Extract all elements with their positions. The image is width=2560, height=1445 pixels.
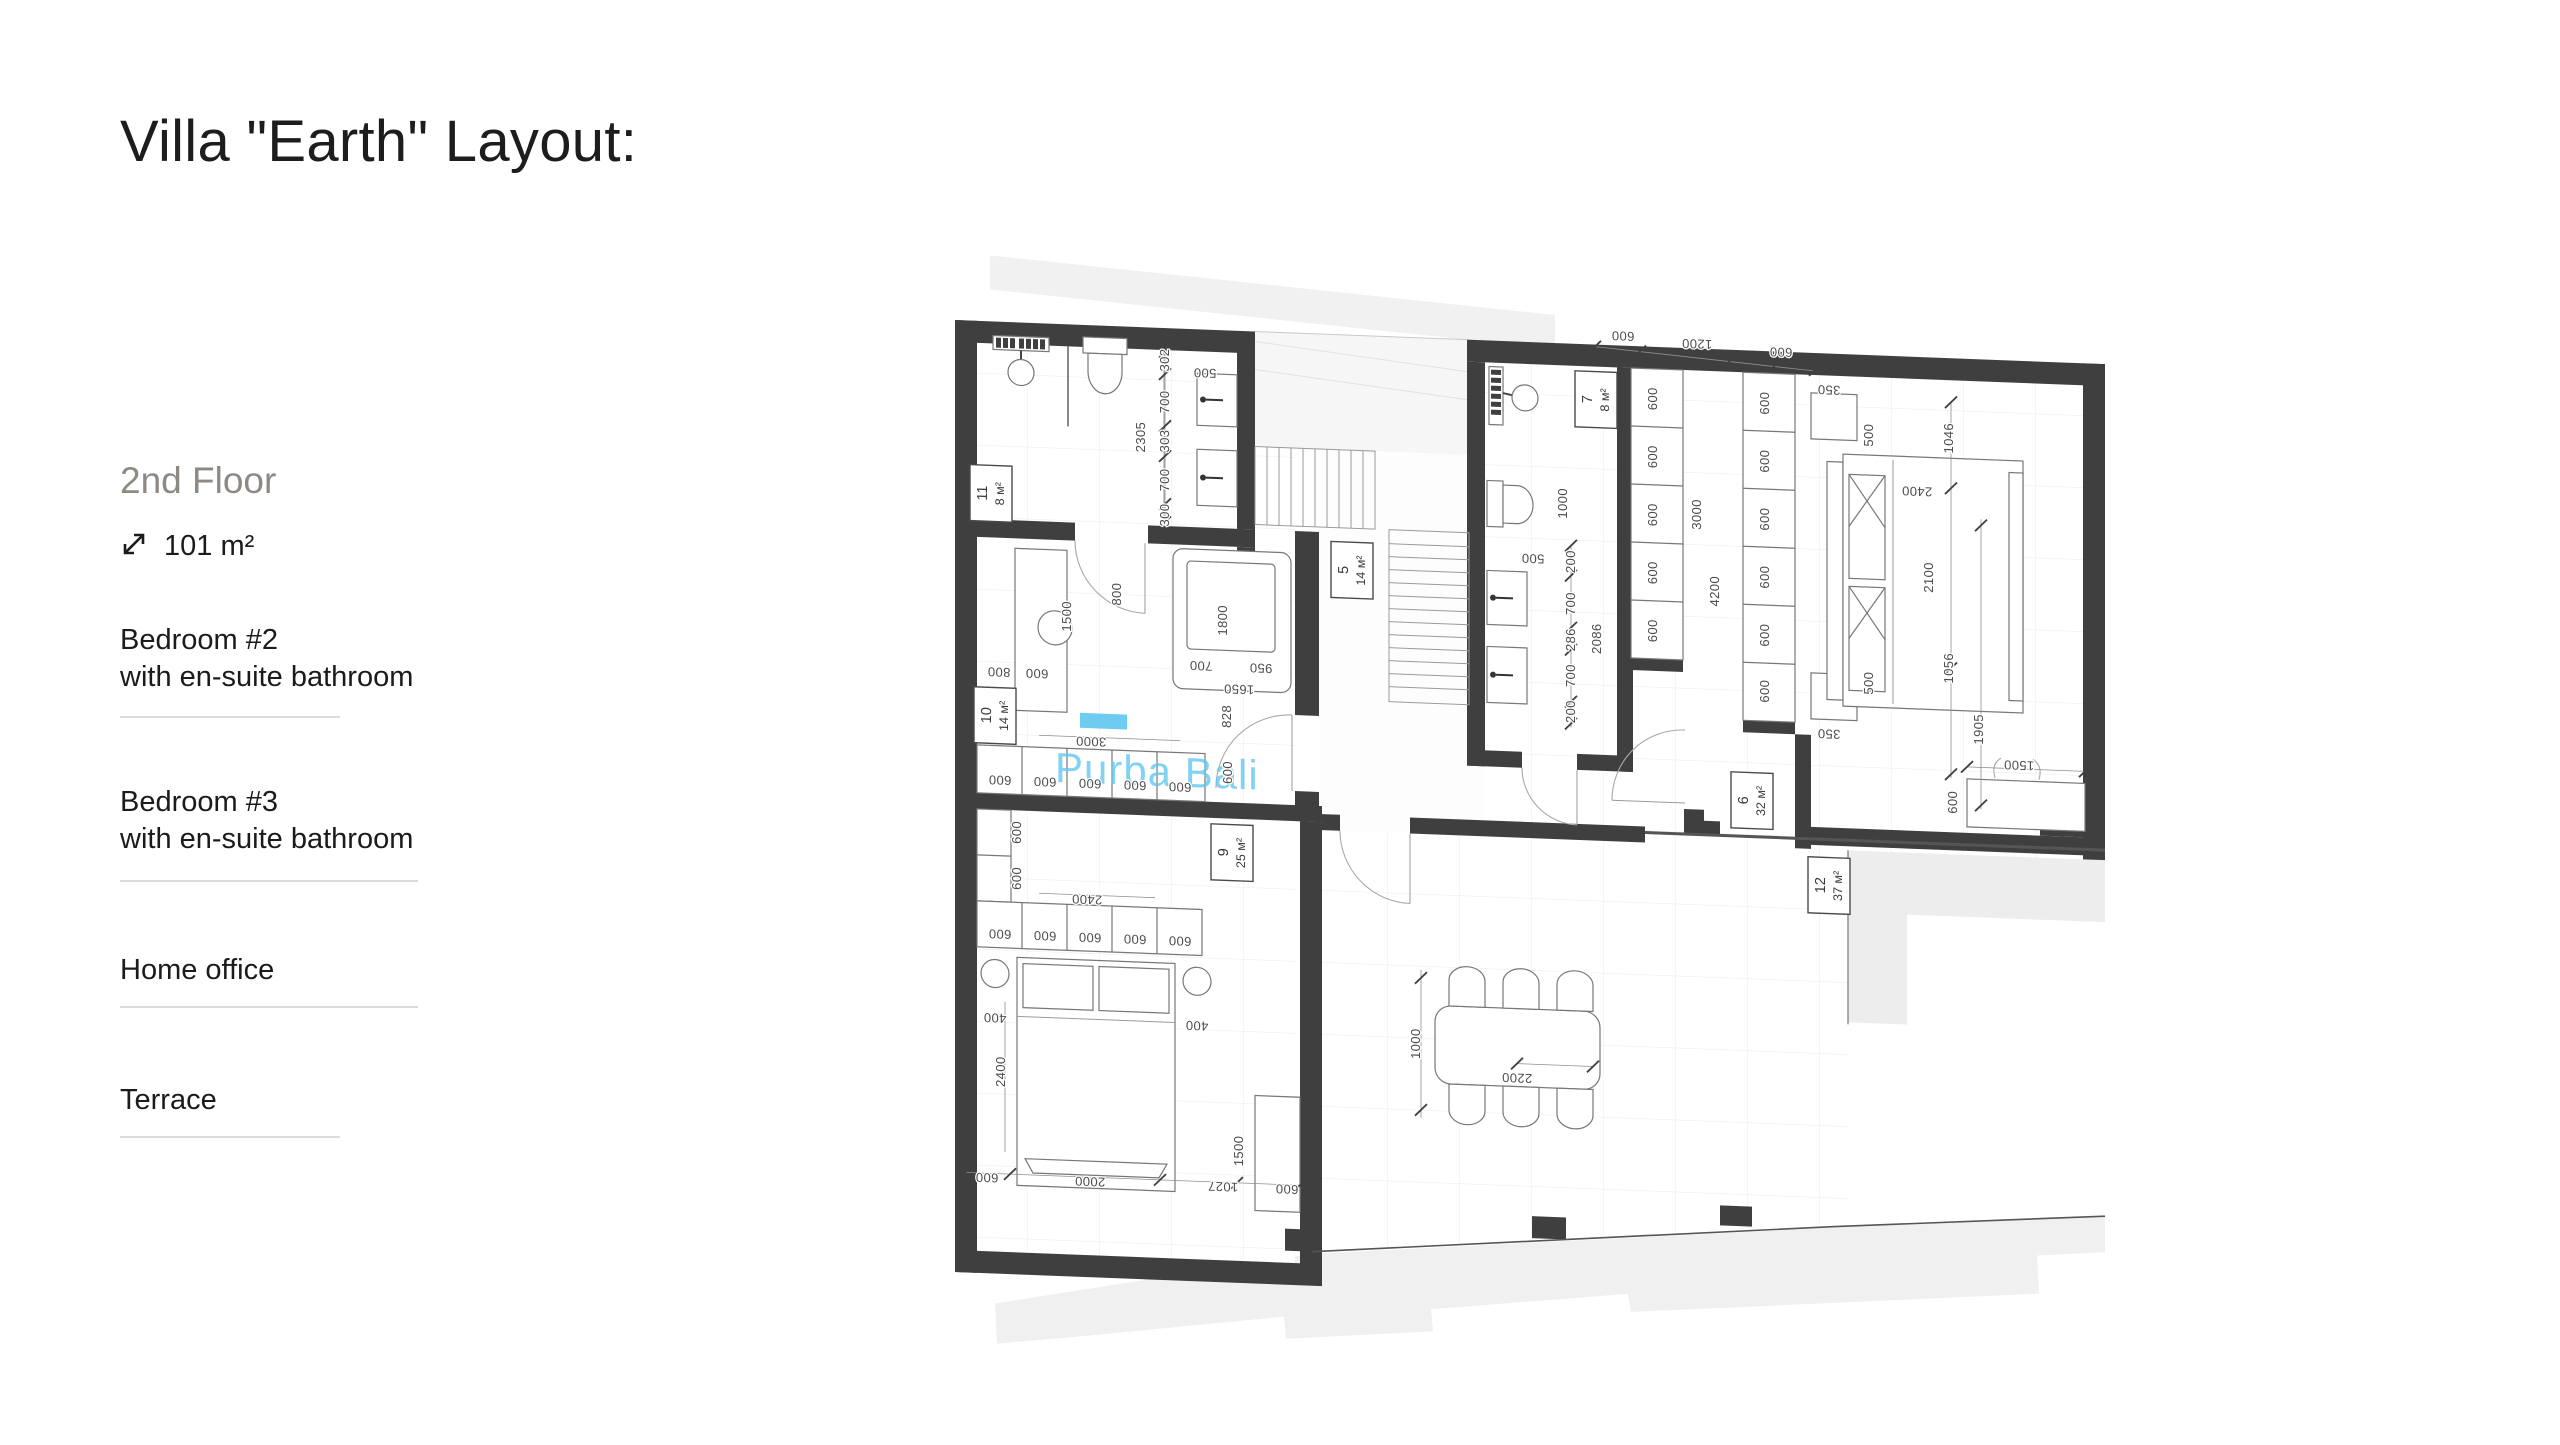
svg-text:12: 12 — [1813, 877, 1829, 894]
page-title: Villa "Earth" Layout: — [120, 108, 637, 175]
plan-root: Purba Bali 60012006005003027003037003002… — [955, 254, 2105, 1386]
dim-label: 700 — [1157, 468, 1172, 491]
room-label: 632 м² — [1731, 772, 1773, 830]
dim-label: 600 — [1645, 561, 1660, 584]
dim-label: 2400 — [1072, 891, 1103, 907]
dim-label: 600 — [989, 926, 1012, 942]
dim-label: 800 — [1109, 582, 1124, 605]
room-list-item-bedroom3: Bedroom #3 with en-suite bathroom — [120, 784, 413, 857]
dim-label: 600 — [1034, 928, 1057, 944]
dim-label: 800 — [988, 664, 1011, 680]
sink-icon — [1197, 449, 1237, 507]
dim-label: 1046 — [1941, 423, 1956, 454]
dim-label: 200 — [1563, 550, 1578, 573]
dim-label: 1200 — [1682, 336, 1713, 352]
dim-label: 700 — [1157, 390, 1172, 413]
nightstand — [1183, 967, 1211, 996]
svg-text:37 м²: 37 м² — [1831, 871, 1845, 902]
dim-label: 3000 — [1689, 499, 1704, 530]
sink-icon — [1487, 570, 1527, 626]
svg-text:9: 9 — [1216, 848, 1232, 857]
room-list-label: Home office — [120, 954, 274, 986]
dim-label: 600 — [1169, 933, 1192, 949]
dim-label: 600 — [1124, 777, 1147, 793]
dim-label: 3000 — [1076, 734, 1107, 750]
dim-label: 1500 — [1231, 1135, 1246, 1166]
room-list-label: Bedroom #2 — [120, 624, 278, 656]
dim-label: 1500 — [2004, 757, 2035, 773]
dim-label: 500 — [1194, 365, 1217, 381]
dim-label: 1800 — [1215, 605, 1230, 636]
room-label: 925 м² — [1211, 824, 1253, 882]
svg-text:7: 7 — [1580, 395, 1596, 404]
nightstand — [1811, 393, 1857, 441]
svg-text:10: 10 — [979, 707, 995, 724]
dim-label: 600 — [1757, 623, 1772, 646]
dim-label: 600 — [1612, 328, 1635, 344]
room-label: 118 м² — [970, 465, 1012, 523]
room-list-label: Terrace — [120, 1084, 217, 1116]
divider — [120, 880, 418, 882]
dim-label: 600 — [1026, 666, 1049, 682]
dim-label: 1905 — [1971, 714, 1986, 745]
svg-text:6: 6 — [1736, 796, 1752, 805]
svg-text:5: 5 — [1336, 566, 1352, 575]
room-label: 1014 м² — [974, 687, 1016, 745]
dim-label: 600 — [1757, 507, 1772, 530]
dim-label: 1000 — [1555, 488, 1570, 519]
dim-label: 700 — [1563, 664, 1578, 687]
dim-label: 2305 — [1133, 422, 1148, 453]
dim-label: 1000 — [1408, 1028, 1423, 1059]
dim-label: 500 — [1522, 551, 1545, 567]
dim-label: 4200 — [1707, 576, 1722, 607]
room-label: 514 м² — [1331, 541, 1373, 599]
svg-text:14 м²: 14 м² — [997, 701, 1011, 732]
dim-label: 1500 — [1059, 601, 1074, 632]
dim-label: 1056 — [1941, 653, 1956, 684]
room-label: 1237 м² — [1808, 857, 1850, 915]
bed-double — [1017, 957, 1175, 1191]
dim-label: 950 — [1250, 660, 1273, 676]
room-label: 78 м² — [1575, 371, 1617, 429]
dim-label: 700 — [1563, 592, 1578, 615]
closet-column — [977, 809, 1011, 902]
dim-label: 286 — [1563, 628, 1578, 651]
dim-label: 700 — [1190, 658, 1213, 674]
expand-arrows-icon — [118, 528, 150, 565]
room-list-sub: with en-suite bathroom — [120, 821, 413, 858]
svg-text:14 м²: 14 м² — [1354, 555, 1368, 586]
dim-label: 600 — [1276, 1181, 1299, 1197]
floor-area-value: 101 m² — [164, 530, 254, 563]
dim-label: 200 — [1563, 700, 1578, 723]
dim-label: 500 — [1861, 423, 1876, 446]
floor-label: 2nd Floor — [120, 460, 276, 502]
dim-label: 600 — [1770, 344, 1793, 360]
room-list-sub: with en-suite bathroom — [120, 659, 413, 696]
room-list-item-bedroom2: Bedroom #2 with en-suite bathroom — [120, 622, 413, 695]
dim-label: 2400 — [1902, 483, 1933, 499]
dim-label: 600 — [1034, 774, 1057, 790]
dim-label: 2400 — [993, 1056, 1008, 1087]
dim-label: 828 — [1219, 705, 1234, 728]
dim-label: 2200 — [1502, 1070, 1533, 1086]
dim-label: 600 — [1079, 930, 1102, 946]
dim-label: 600 — [989, 772, 1012, 788]
dim-label: 600 — [1220, 761, 1235, 784]
dim-label: 302 — [1157, 348, 1172, 371]
dim-label: 303 — [1157, 429, 1172, 452]
room-list-label: Bedroom #3 — [120, 786, 278, 818]
dim-label: 500 — [1861, 671, 1876, 694]
dim-label: 1650 — [1224, 681, 1255, 697]
dim-label: 600 — [1124, 931, 1147, 947]
dim-label: 1027 — [1208, 1179, 1239, 1195]
dim-label: 2100 — [1921, 562, 1936, 593]
svg-text:32 м²: 32 м² — [1754, 786, 1768, 817]
sink-icon — [1487, 646, 1527, 704]
svg-text:25 м²: 25 м² — [1234, 838, 1248, 869]
dim-label: 350 — [1818, 382, 1841, 398]
divider — [120, 1006, 418, 1008]
dim-label: 2086 — [1589, 623, 1604, 654]
dim-label: 600 — [1645, 619, 1660, 642]
dim-label: 600 — [1945, 791, 1960, 814]
closet-column — [1743, 372, 1795, 722]
dim-label: 600 — [1009, 867, 1024, 890]
dim-label: 600 — [1169, 779, 1192, 795]
floor-plan-image: Purba Bali 60012006005003027003037003002… — [955, 250, 2165, 1440]
room-list-item-terrace: Terrace — [120, 1082, 217, 1119]
dim-label: 600 — [1645, 387, 1660, 410]
nightstand — [981, 959, 1009, 988]
dim-label: 400 — [984, 1010, 1007, 1026]
dim-label: 600 — [1009, 821, 1024, 844]
dim-label: 600 — [1757, 565, 1772, 588]
dim-label: 600 — [1645, 503, 1660, 526]
dim-label: 600 — [1757, 449, 1772, 472]
dim-label: 600 — [1079, 776, 1102, 792]
room-list-item-home-office: Home office — [120, 952, 274, 989]
dim-label: 400 — [1186, 1018, 1209, 1034]
svg-text:8 м²: 8 м² — [993, 482, 1007, 506]
dim-label: 600 — [1757, 679, 1772, 702]
svg-text:8 м²: 8 м² — [1598, 388, 1612, 412]
dim-label: 300 — [1157, 503, 1172, 526]
divider — [120, 716, 340, 718]
dim-label: 350 — [1818, 726, 1841, 742]
divider — [120, 1136, 340, 1138]
svg-text:11: 11 — [975, 485, 991, 501]
dim-label: 600 — [1757, 391, 1772, 414]
dim-label: 2000 — [1075, 1174, 1106, 1190]
dim-label: 600 — [1645, 445, 1660, 468]
dim-label: 600 — [976, 1170, 999, 1186]
floor-area-row: 101 m² — [118, 528, 254, 565]
page: Villa "Earth" Layout: 2nd Floor 101 m² B… — [0, 0, 2560, 1440]
